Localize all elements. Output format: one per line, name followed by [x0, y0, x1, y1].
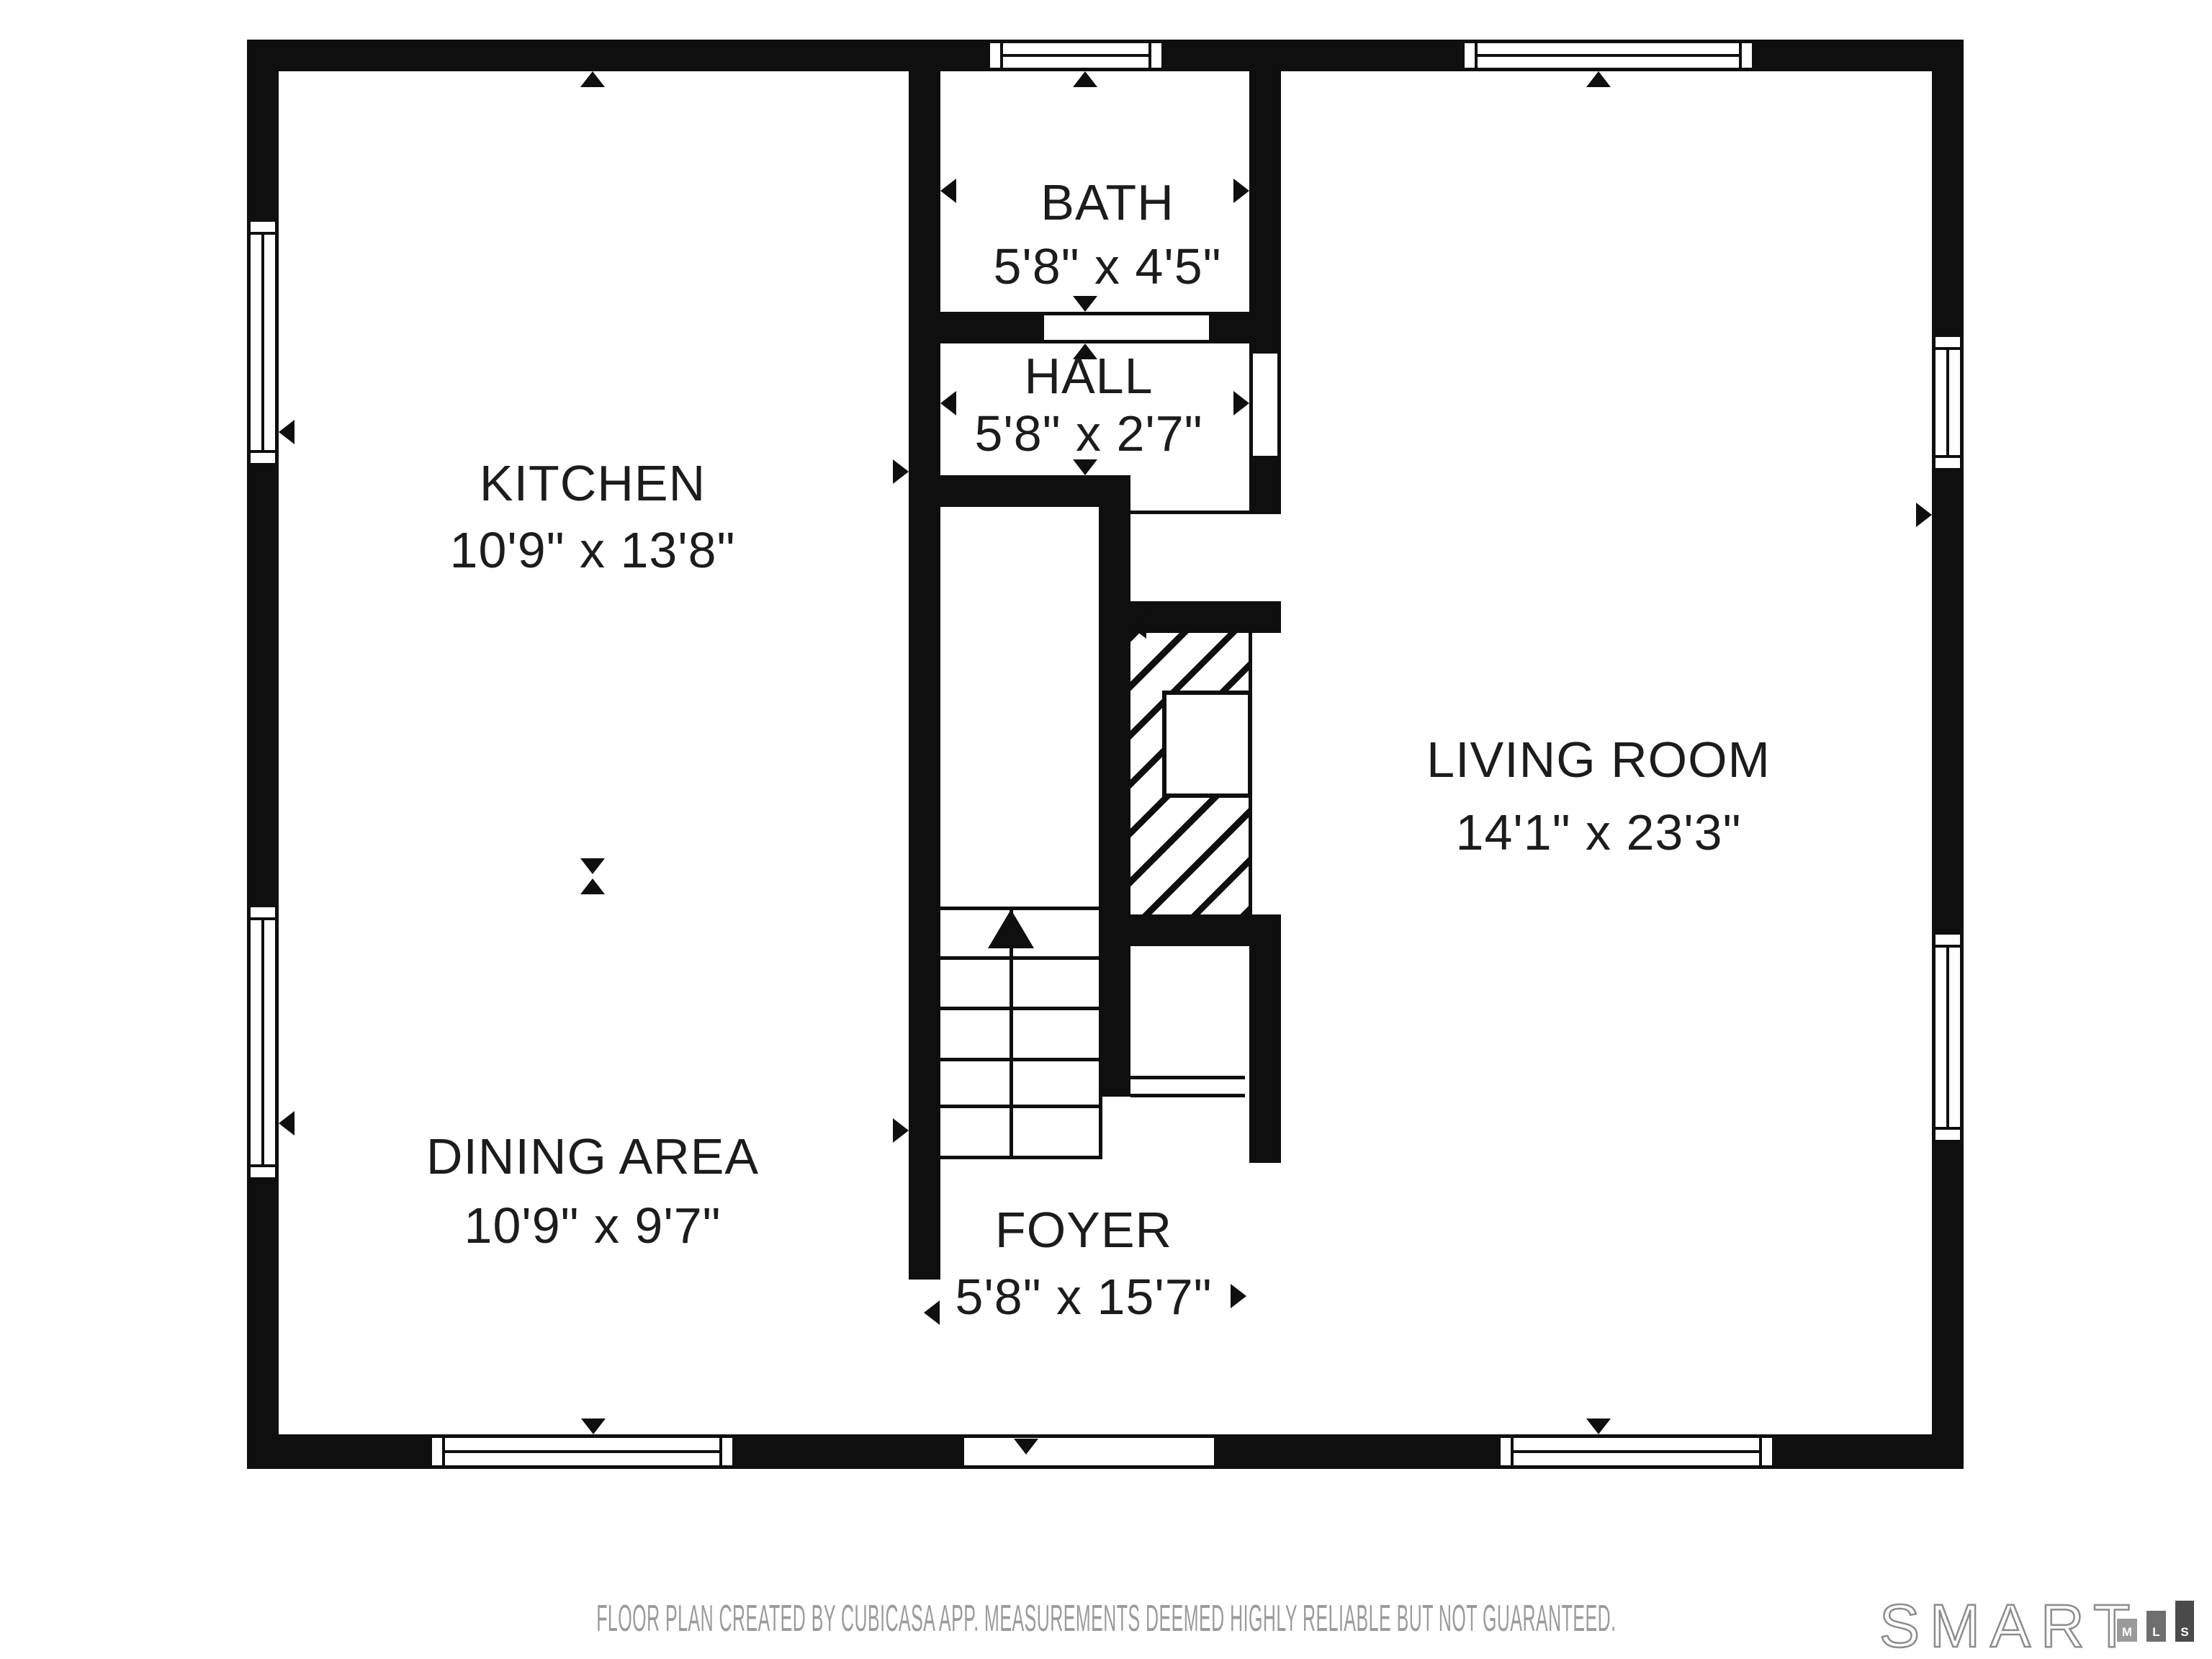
arrow-bath-right-icon: [1233, 179, 1249, 203]
arrow-dining-down-icon: [581, 1419, 606, 1434]
door-closet: [1130, 1076, 1245, 1097]
window-left-dining: [247, 904, 279, 1181]
arrow-kitchen-left-icon: [279, 420, 295, 444]
room-label-hall: HALL: [1024, 347, 1153, 405]
footer-disclaimer: FLOOR PLAN CREATED BY CUBICASA APP. MEAS…: [596, 1600, 1616, 1637]
window-right-living-upper: [1932, 333, 1964, 472]
wall-column-right-upper: [1249, 71, 1281, 354]
room-dims-bath: 5'8" x 4'5": [993, 238, 1221, 296]
wall-right: [1932, 40, 1964, 1469]
logo-word: SMART: [1879, 1596, 2140, 1656]
arrow-dining-left-icon: [279, 1111, 295, 1136]
door-bath: [1044, 312, 1209, 343]
door-hall-living: [1249, 354, 1281, 456]
room-label-kitchen: KITCHEN: [480, 454, 706, 513]
room-dims-dining-area: 10'9" x 9'7": [464, 1197, 721, 1255]
wall-stair-divider: [1099, 475, 1130, 1097]
room-label-bath: BATH: [1040, 174, 1174, 232]
window-bottom-living: [1497, 1434, 1776, 1469]
arrow-bath-left-icon: [940, 179, 956, 203]
room-dims-hall: 5'8" x 2'7": [974, 405, 1202, 463]
arrow-dining-right-icon: [893, 1118, 909, 1143]
arrow-hall-right-icon: [1233, 391, 1249, 415]
logo-block-m: M: [2117, 1619, 2137, 1642]
window-top-bath: [986, 40, 1165, 71]
arrow-dining-up-icon: [580, 878, 605, 894]
arrow-foyer-entry-icon: [1014, 1439, 1038, 1455]
door-front-entry: [964, 1434, 1214, 1469]
wall-alcove-bottom: [1099, 601, 1281, 633]
arrow-living-left-icon: [1130, 614, 1146, 639]
window-right-living-lower: [1932, 931, 1964, 1143]
arrow-foyer-right-icon: [1231, 1284, 1246, 1308]
logo-block-s: S: [2175, 1601, 2194, 1642]
wall-column-left: [909, 71, 940, 1280]
wall-fireplace-bottom: [1099, 914, 1281, 946]
room-dims-living-room: 14'1" x 23'3": [1456, 804, 1742, 862]
alcove-opening-line: [1130, 511, 1281, 514]
arrow-foyer-left-icon: [924, 1300, 940, 1325]
arrow-living-right-icon: [1916, 503, 1932, 527]
arrow-kitchen-right-icon: [893, 459, 909, 484]
arrow-bath-up-icon: [1073, 71, 1097, 87]
window-top-living: [1461, 40, 1755, 71]
arrow-kitchen-down-icon: [580, 858, 605, 874]
arrow-living-up-icon: [1586, 71, 1611, 87]
floor-plan-canvas: KITCHEN 10'9" x 13'8" BATH 5'8" x 4'5" H…: [0, 0, 2212, 1659]
arrow-bath-down-icon: [1073, 296, 1097, 312]
stairs-up-arrow-icon: [988, 909, 1034, 948]
wall-column-right-lower: [1249, 914, 1281, 1163]
firebox: [1162, 691, 1252, 798]
room-label-living-room: LIVING ROOM: [1426, 731, 1771, 789]
wall-hall-bottom: [909, 475, 1130, 507]
arrow-kitchen-up-icon: [580, 71, 605, 87]
room-label-foyer: FOYER: [995, 1201, 1172, 1259]
window-left-kitchen: [247, 218, 279, 467]
arrow-living-down-icon: [1586, 1419, 1611, 1434]
room-dims-kitchen: 10'9" x 13'8": [450, 521, 736, 580]
logo-block-l: L: [2146, 1611, 2166, 1642]
wall-column-right-mid: [1249, 456, 1281, 513]
room-label-dining-area: DINING AREA: [426, 1128, 759, 1186]
room-dims-foyer: 5'8" x 15'7": [956, 1268, 1213, 1326]
arrow-hall-left-icon: [940, 391, 956, 415]
window-bottom-dining: [428, 1434, 736, 1469]
